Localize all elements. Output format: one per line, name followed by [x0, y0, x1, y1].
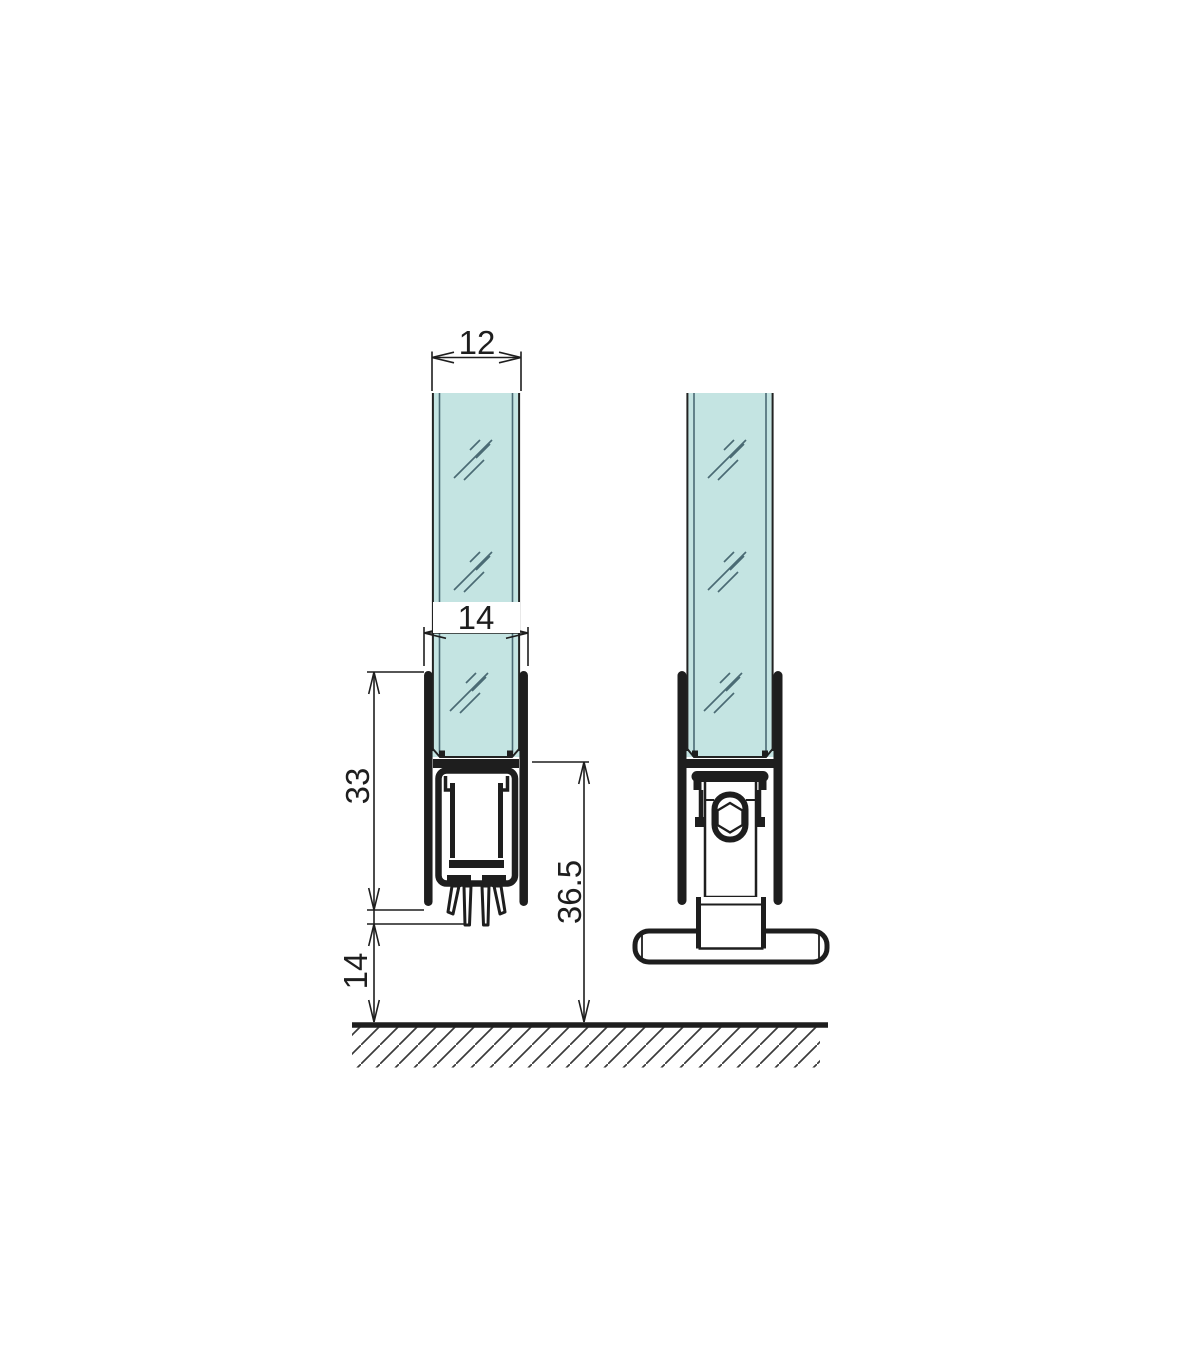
right-view-glass-panel [687, 393, 774, 757]
floor-hatch [352, 1028, 820, 1068]
dim-label-glass-thickness: 12 [459, 324, 496, 361]
dim-label-channel-width: 14 [458, 599, 495, 636]
technical-drawing-page: 12 14 33 36.5 14 [0, 0, 1200, 1372]
left-view-glass-panel [432, 393, 520, 757]
hex-bolt [715, 795, 746, 840]
seal-fingers [448, 886, 505, 925]
clamp-post [697, 897, 764, 949]
dim-label-profile-height: 33 [339, 768, 376, 805]
dim-label-floor-clearance: 14 [337, 953, 374, 990]
floor [352, 1025, 828, 1068]
dim-label-overall-height: 36.5 [551, 860, 588, 924]
cross-section-drawing: 12 14 33 36.5 14 [0, 0, 1200, 1372]
